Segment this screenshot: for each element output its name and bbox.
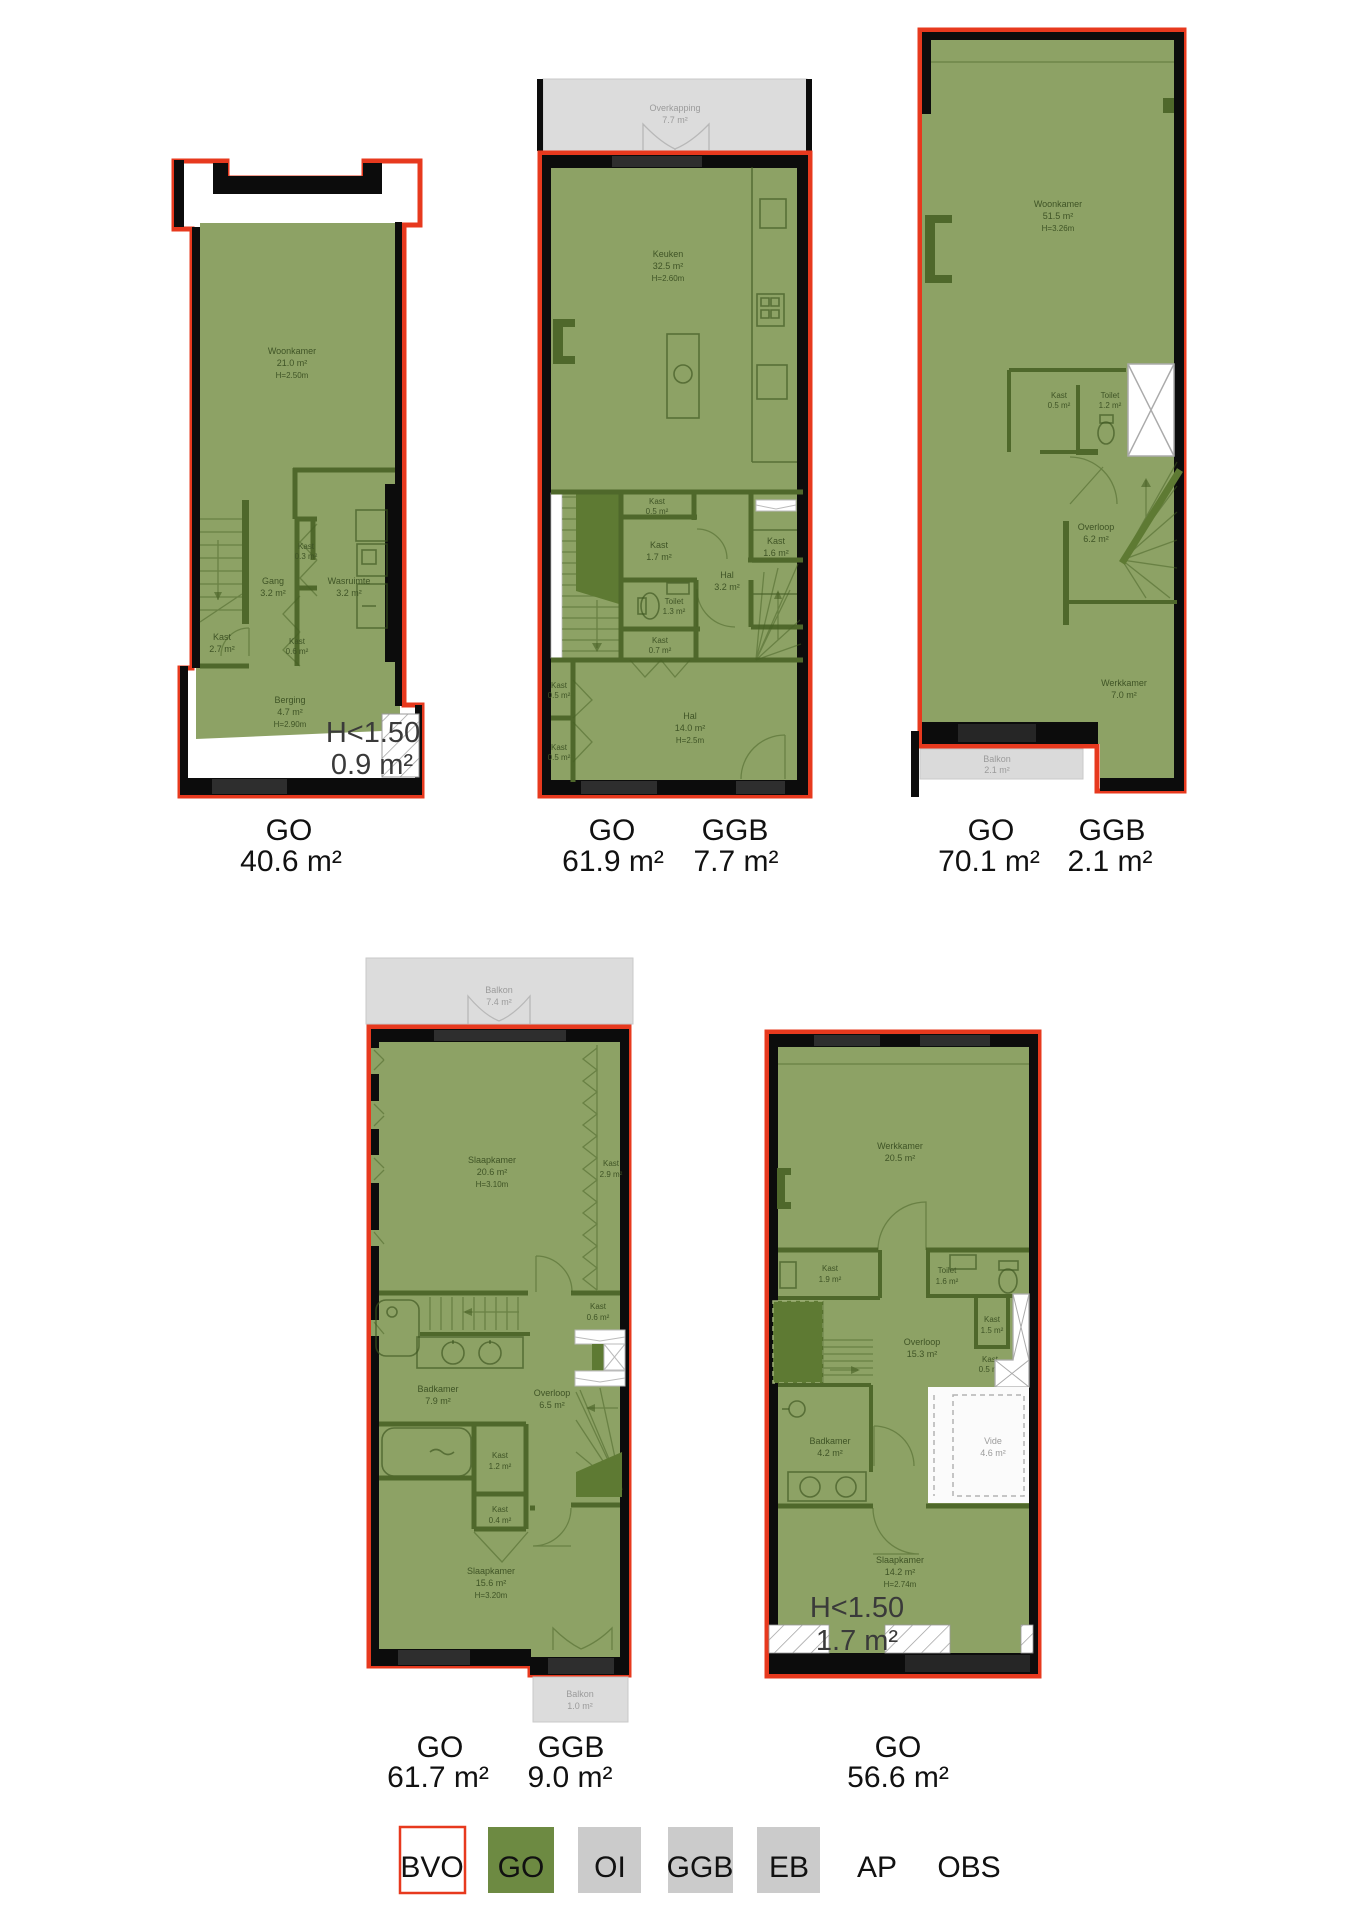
svg-text:H=2.74m: H=2.74m: [884, 1580, 917, 1589]
svg-text:3.2 m²: 3.2 m²: [336, 588, 362, 598]
svg-text:Kast: Kast: [551, 681, 568, 690]
svg-text:H=3.20m: H=3.20m: [475, 1591, 508, 1600]
svg-text:1.6 m²: 1.6 m²: [763, 548, 789, 558]
svg-text:2.1 m²: 2.1 m²: [1067, 845, 1152, 878]
svg-text:Slaapkamer: Slaapkamer: [468, 1155, 516, 1165]
svg-text:1.2 m²: 1.2 m²: [489, 1462, 512, 1471]
svg-text:1.3 m²: 1.3 m²: [663, 607, 686, 616]
svg-text:Slaapkamer: Slaapkamer: [876, 1555, 924, 1565]
svg-text:AP: AP: [857, 1851, 897, 1884]
svg-text:0.4 m²: 0.4 m²: [489, 1516, 512, 1525]
svg-text:EB: EB: [769, 1851, 809, 1884]
svg-text:Werkkamer: Werkkamer: [1101, 678, 1147, 688]
svg-text:0.7 m²: 0.7 m²: [649, 646, 672, 655]
svg-text:1.9 m²: 1.9 m²: [819, 1275, 842, 1284]
svg-text:0.5 m²: 0.5 m²: [646, 507, 669, 516]
svg-text:21.0 m²: 21.0 m²: [277, 358, 308, 368]
svg-text:H=2.90m: H=2.90m: [274, 720, 307, 729]
svg-text:Overloop: Overloop: [904, 1337, 941, 1347]
svg-text:GO: GO: [266, 814, 313, 847]
svg-text:Wasruimte: Wasruimte: [328, 576, 371, 586]
svg-text:Vide: Vide: [984, 1436, 1002, 1446]
svg-text:9.0 m²: 9.0 m²: [527, 1761, 612, 1794]
svg-text:7.7 m²: 7.7 m²: [662, 115, 688, 125]
svg-text:Kast: Kast: [767, 536, 786, 546]
svg-text:2.7 m²: 2.7 m²: [209, 644, 235, 654]
svg-text:Kast: Kast: [298, 542, 315, 551]
svg-text:OBS: OBS: [937, 1851, 1000, 1884]
svg-text:Hal: Hal: [720, 570, 734, 580]
svg-text:Kast: Kast: [603, 1159, 620, 1168]
svg-text:20.5 m²: 20.5 m²: [885, 1153, 916, 1163]
svg-text:H=3.26m: H=3.26m: [1042, 224, 1075, 233]
svg-text:0.5 m²: 0.5 m²: [548, 753, 571, 762]
svg-text:40.6 m²: 40.6 m²: [240, 845, 342, 878]
svg-text:0.3 m²: 0.3 m²: [295, 552, 318, 561]
svg-text:GO: GO: [875, 1731, 922, 1764]
svg-text:Hal: Hal: [683, 711, 697, 721]
svg-text:H<1.50: H<1.50: [810, 1592, 904, 1624]
svg-text:6.5 m²: 6.5 m²: [539, 1400, 565, 1410]
svg-text:14.0 m²: 14.0 m²: [675, 723, 706, 733]
svg-text:Kast: Kast: [213, 632, 232, 642]
svg-text:1.2 m²: 1.2 m²: [1099, 401, 1122, 410]
svg-text:4.7 m²: 4.7 m²: [277, 707, 303, 717]
svg-text:7.4 m²: 7.4 m²: [486, 997, 512, 1007]
svg-text:1.0 m²: 1.0 m²: [567, 1701, 593, 1711]
svg-text:H=2.50m: H=2.50m: [276, 371, 309, 380]
svg-text:H=2.5m: H=2.5m: [676, 736, 705, 745]
svg-text:Gang: Gang: [262, 576, 284, 586]
svg-text:GO: GO: [498, 1851, 545, 1884]
svg-text:7.7 m²: 7.7 m²: [693, 845, 778, 878]
svg-text:Toilet: Toilet: [1101, 391, 1120, 400]
svg-text:15.3 m²: 15.3 m²: [907, 1349, 938, 1359]
svg-text:Badkamer: Badkamer: [417, 1384, 458, 1394]
svg-text:Kast: Kast: [289, 637, 306, 646]
svg-text:GGB: GGB: [667, 1851, 734, 1884]
svg-text:2.1 m²: 2.1 m²: [984, 765, 1010, 775]
svg-text:3.2 m²: 3.2 m²: [260, 588, 286, 598]
svg-text:15.6 m²: 15.6 m²: [476, 1578, 507, 1588]
svg-text:GO: GO: [589, 814, 636, 847]
svg-text:0.9 m²: 0.9 m²: [331, 749, 414, 781]
svg-text:Toilet: Toilet: [665, 597, 684, 606]
svg-text:Toilet: Toilet: [938, 1266, 957, 1275]
svg-text:51.5 m²: 51.5 m²: [1043, 211, 1074, 221]
svg-text:56.6 m²: 56.6 m²: [847, 1761, 949, 1794]
svg-text:4.2 m²: 4.2 m²: [817, 1448, 843, 1458]
svg-text:70.1 m²: 70.1 m²: [938, 845, 1040, 878]
svg-text:Kast: Kast: [1051, 391, 1068, 400]
svg-text:Overkapping: Overkapping: [649, 103, 700, 113]
svg-text:1.7 m²: 1.7 m²: [816, 1625, 899, 1657]
svg-text:Kast: Kast: [649, 497, 666, 506]
svg-text:H=3.10m: H=3.10m: [476, 1180, 509, 1189]
svg-text:Slaapkamer: Slaapkamer: [467, 1566, 515, 1576]
svg-text:Kast: Kast: [650, 540, 669, 550]
svg-text:H=2.60m: H=2.60m: [652, 274, 685, 283]
svg-text:Werkkamer: Werkkamer: [877, 1141, 923, 1151]
svg-text:61.9 m²: 61.9 m²: [562, 845, 664, 878]
svg-text:7.9 m²: 7.9 m²: [425, 1396, 451, 1406]
svg-text:GGB: GGB: [1079, 814, 1146, 847]
svg-text:32.5 m²: 32.5 m²: [653, 261, 684, 271]
svg-text:1.7 m²: 1.7 m²: [646, 552, 672, 562]
svg-text:GGB: GGB: [702, 814, 769, 847]
svg-text:Kast: Kast: [492, 1451, 509, 1460]
svg-text:Kast: Kast: [492, 1505, 509, 1514]
svg-text:Overloop: Overloop: [1078, 522, 1115, 532]
svg-text:1.5 m²: 1.5 m²: [981, 1326, 1004, 1335]
svg-text:3.2 m²: 3.2 m²: [714, 582, 740, 592]
svg-text:GO: GO: [417, 1731, 464, 1764]
svg-text:7.0 m²: 7.0 m²: [1111, 690, 1137, 700]
svg-text:2.9 m²: 2.9 m²: [600, 1170, 623, 1179]
svg-text:Balkon: Balkon: [983, 754, 1011, 764]
svg-text:Kast: Kast: [590, 1302, 607, 1311]
svg-text:Balkon: Balkon: [566, 1689, 594, 1699]
svg-text:Kast: Kast: [822, 1264, 839, 1273]
svg-text:0.6 m²: 0.6 m²: [286, 647, 309, 656]
svg-text:Balkon: Balkon: [485, 985, 513, 995]
svg-text:6.2 m²: 6.2 m²: [1083, 534, 1109, 544]
svg-text:Woonkamer: Woonkamer: [1034, 199, 1082, 209]
svg-text:Overloop: Overloop: [534, 1388, 571, 1398]
svg-text:20.6 m²: 20.6 m²: [477, 1167, 508, 1177]
svg-text:GO: GO: [968, 814, 1015, 847]
svg-text:OI: OI: [594, 1851, 626, 1884]
svg-text:Berging: Berging: [274, 695, 305, 705]
svg-text:0.5 m²: 0.5 m²: [1048, 401, 1071, 410]
svg-text:Kast: Kast: [652, 636, 669, 645]
svg-text:Keuken: Keuken: [653, 249, 684, 259]
svg-text:14.2 m²: 14.2 m²: [885, 1567, 916, 1577]
svg-text:Badkamer: Badkamer: [809, 1436, 850, 1446]
svg-text:4.6 m²: 4.6 m²: [980, 1448, 1006, 1458]
svg-text:61.7 m²: 61.7 m²: [387, 1761, 489, 1794]
svg-text:Kast: Kast: [984, 1315, 1001, 1324]
svg-text:0.6 m²: 0.6 m²: [587, 1313, 610, 1322]
svg-text:0.5 m²: 0.5 m²: [548, 691, 571, 700]
svg-text:Kast: Kast: [551, 743, 568, 752]
svg-text:H<1.50: H<1.50: [326, 717, 420, 749]
svg-text:BVO: BVO: [400, 1851, 463, 1884]
svg-text:Woonkamer: Woonkamer: [268, 346, 316, 356]
svg-text:1.6 m²: 1.6 m²: [936, 1277, 959, 1286]
svg-text:GGB: GGB: [538, 1731, 605, 1764]
